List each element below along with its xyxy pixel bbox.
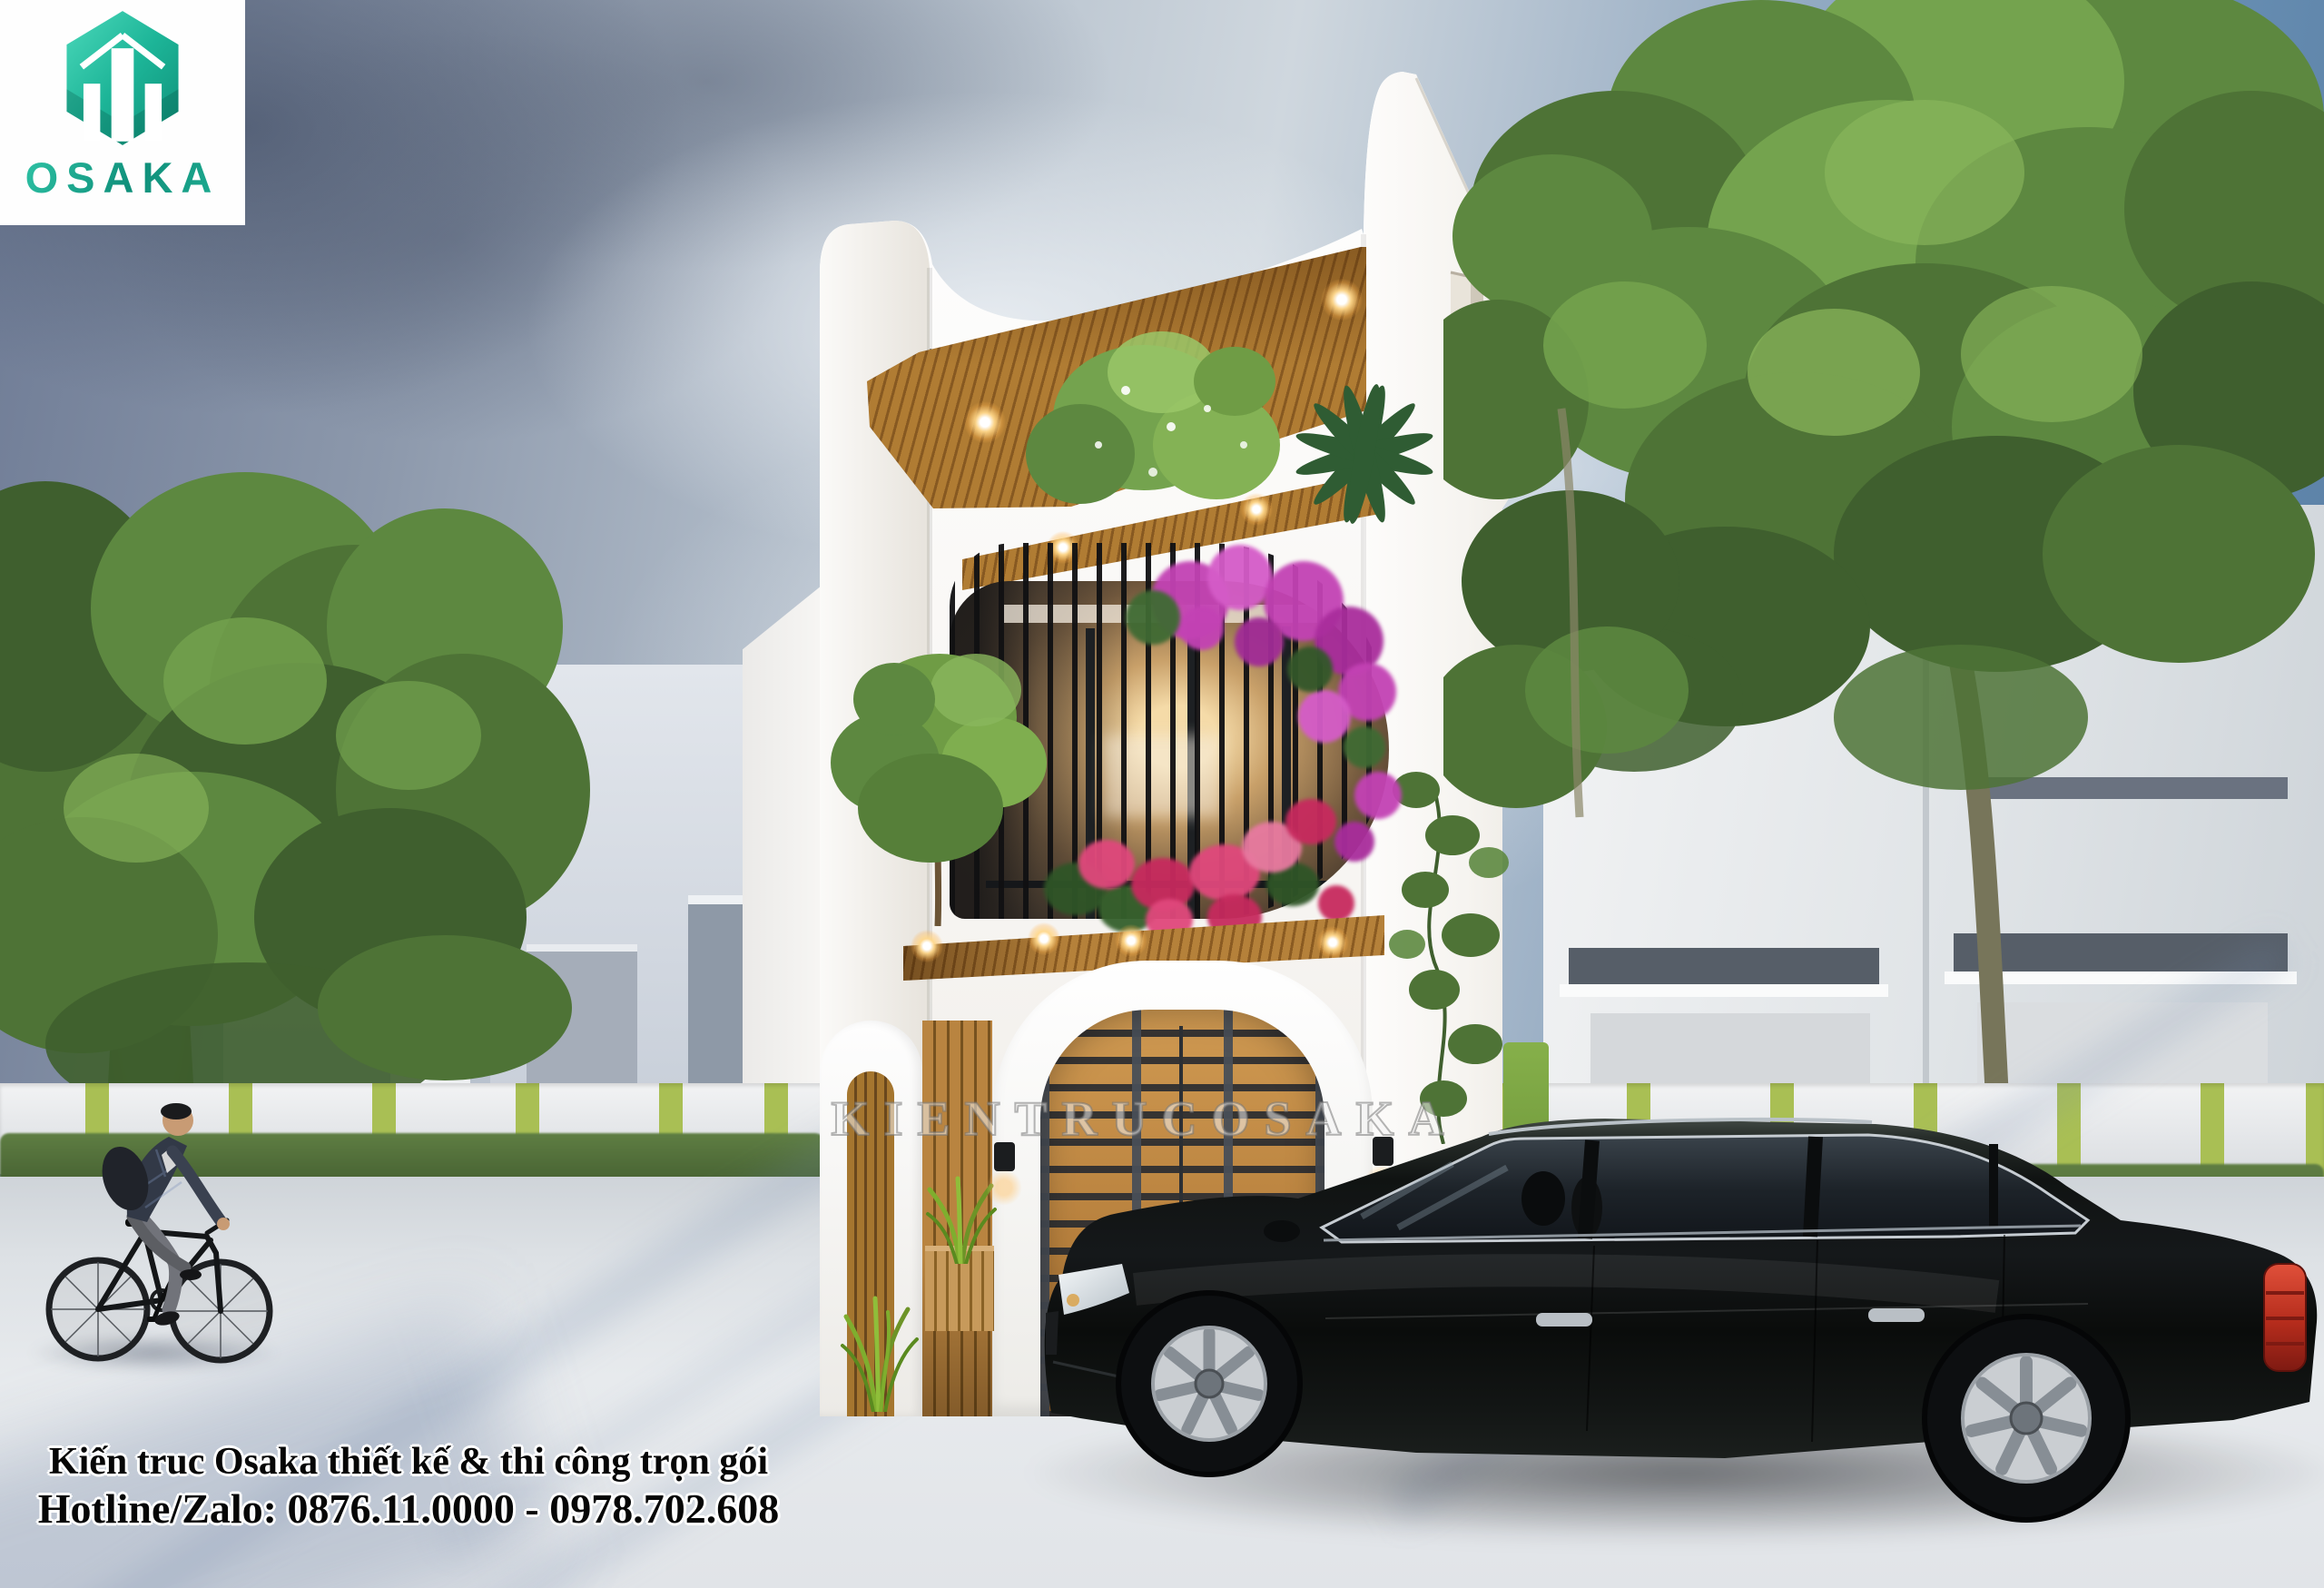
downlight xyxy=(911,930,943,962)
downlight xyxy=(1321,279,1363,321)
bougainvillea xyxy=(1298,690,1351,743)
brand-logo-card: OSAKA xyxy=(0,0,245,225)
brand-name: OSAKA xyxy=(0,153,245,202)
tree-right-overlap xyxy=(1443,109,1825,853)
footer-caption: Kiến truc Osaka thiết kế & thi công trọn… xyxy=(0,1440,817,1533)
palm-plant xyxy=(1278,345,1451,536)
bougainvillea xyxy=(1235,617,1284,666)
bougainvillea xyxy=(1354,772,1402,819)
pink-flowers xyxy=(1318,885,1354,922)
architectural-render-scene: KIENTRUCOSAKA xyxy=(0,0,2324,1588)
front-wheel xyxy=(1118,1293,1300,1475)
rear-wheel xyxy=(1925,1317,2128,1520)
pink-flowers xyxy=(1285,799,1336,844)
vine-leaves xyxy=(1344,726,1385,768)
balcony-tree xyxy=(831,636,1049,926)
downlight xyxy=(1115,924,1147,957)
downlight xyxy=(1316,926,1349,959)
downlight xyxy=(1028,922,1060,955)
vine-leaves xyxy=(1287,646,1333,692)
black-sedan-car xyxy=(999,1071,2324,1580)
footer-line1: Kiến truc Osaka thiết kế & thi công trọn… xyxy=(0,1440,817,1484)
cyclist xyxy=(18,1071,300,1389)
footer-line2: Hotline/Zalo: 0876.11.0000 - 0978.702.60… xyxy=(0,1485,817,1533)
downlight xyxy=(964,401,1006,443)
vine-leaves xyxy=(1126,590,1180,645)
bougainvillea xyxy=(1180,607,1224,650)
osaka-hexagon-logo-icon xyxy=(50,5,195,151)
pink-flowers xyxy=(1078,840,1135,889)
bougainvillea xyxy=(1334,822,1374,862)
grass-clump xyxy=(835,1289,921,1412)
roof-plant xyxy=(1017,318,1289,536)
